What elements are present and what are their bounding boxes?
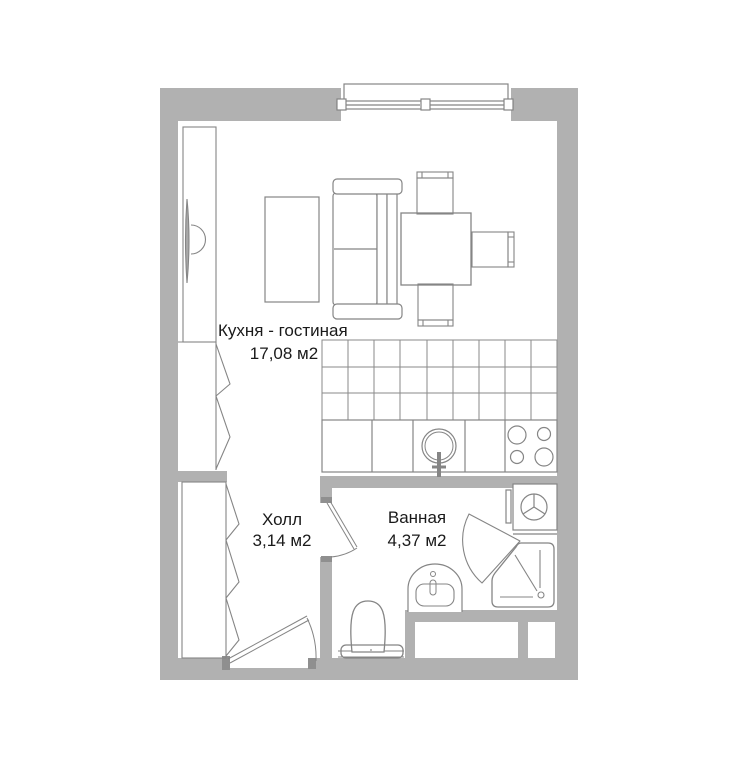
vent-shaft-small bbox=[528, 622, 555, 658]
wall-tv-icon bbox=[186, 199, 206, 283]
room-label-hall: Холл bbox=[262, 510, 302, 529]
closet bbox=[178, 127, 216, 342]
washing-machine bbox=[506, 484, 557, 534]
sofa bbox=[333, 179, 402, 319]
vent-shaft-large bbox=[415, 622, 518, 658]
dining-table bbox=[401, 213, 471, 285]
toilet bbox=[338, 601, 404, 658]
chair-bottom bbox=[418, 284, 453, 326]
room-label-kitchen-living: Кухня - гостиная bbox=[218, 321, 348, 340]
window bbox=[337, 84, 513, 110]
floorplan-canvas: Кухня - гостиная 17,08 м2 Холл 3,14 м2 В… bbox=[0, 0, 750, 765]
room-area-bathroom: 4,37 м2 bbox=[388, 531, 447, 550]
room-label-bathroom: Ванная bbox=[388, 508, 446, 527]
room-area-kitchen-living: 17,08 м2 bbox=[250, 344, 318, 363]
floorplan: Кухня - гостиная 17,08 м2 Холл 3,14 м2 В… bbox=[0, 0, 750, 765]
coffee-table bbox=[265, 197, 319, 302]
kitchen-backsplash-tiles bbox=[322, 340, 557, 420]
bathroom-door bbox=[327, 501, 357, 557]
bathroom-sink bbox=[408, 564, 462, 612]
wardrobe-kitchen bbox=[216, 342, 230, 470]
wardrobe-hall bbox=[182, 482, 239, 658]
room-area-hall: 3,14 м2 bbox=[253, 531, 312, 550]
chair-top bbox=[417, 172, 453, 214]
chair-right bbox=[472, 232, 514, 267]
entrance-door bbox=[228, 616, 316, 663]
